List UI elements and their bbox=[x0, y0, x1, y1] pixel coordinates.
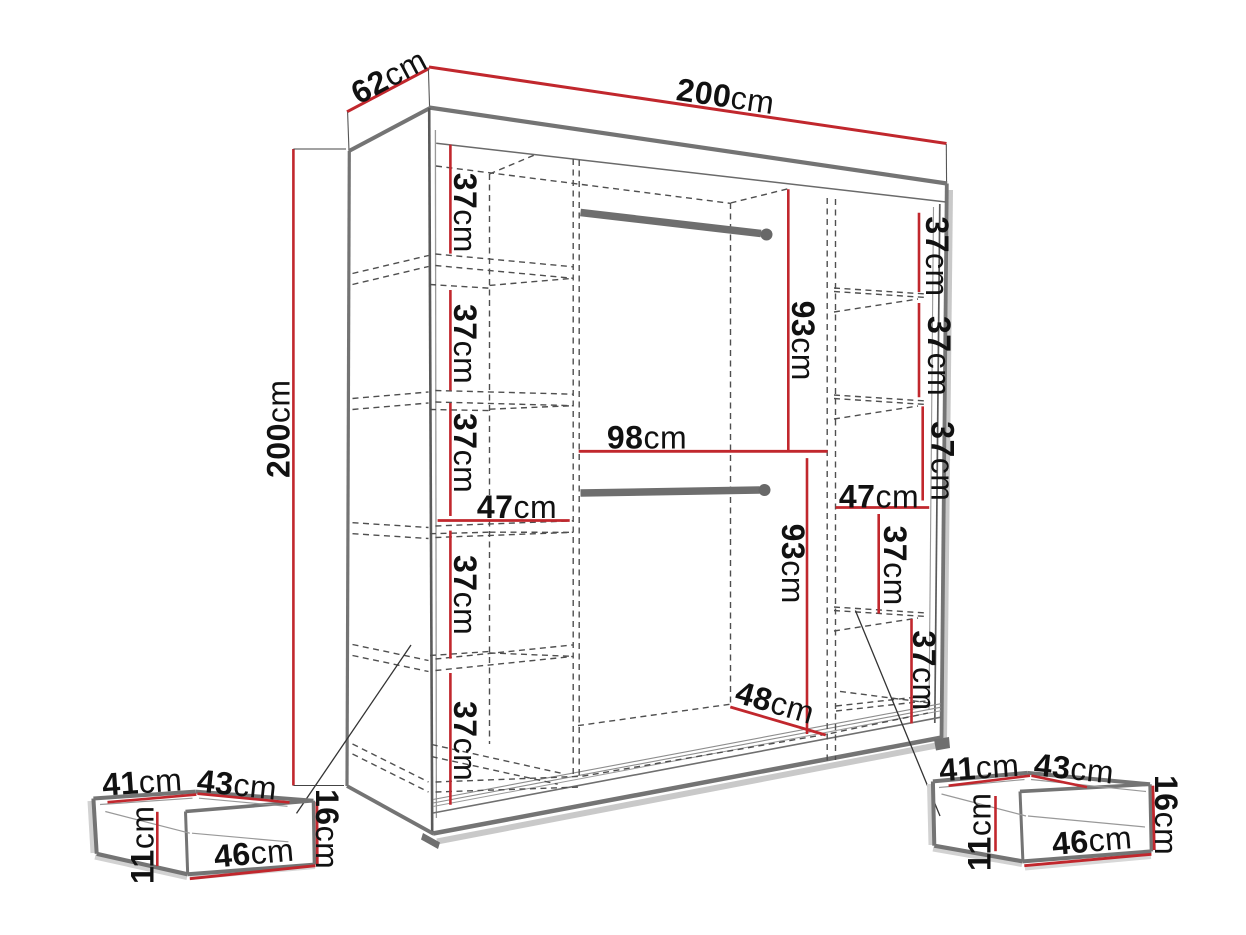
svg-text:16cm: 16cm bbox=[1148, 775, 1184, 855]
svg-text:37cm: 37cm bbox=[877, 526, 913, 606]
svg-text:37cm: 37cm bbox=[919, 216, 955, 296]
svg-text:37cm: 37cm bbox=[447, 413, 483, 493]
svg-text:46cm: 46cm bbox=[1051, 819, 1134, 862]
svg-text:16cm: 16cm bbox=[309, 789, 345, 869]
svg-text:93cm: 93cm bbox=[785, 301, 821, 381]
svg-text:47cm: 47cm bbox=[839, 479, 919, 515]
svg-text:11cm: 11cm bbox=[125, 806, 161, 884]
svg-text:37cm: 37cm bbox=[447, 555, 483, 635]
svg-text:37cm: 37cm bbox=[906, 630, 942, 710]
svg-text:41cm: 41cm bbox=[101, 761, 184, 803]
svg-text:37cm: 37cm bbox=[925, 421, 961, 501]
svg-text:93cm: 93cm bbox=[775, 524, 811, 604]
svg-text:46cm: 46cm bbox=[213, 832, 296, 875]
svg-text:37cm: 37cm bbox=[921, 316, 957, 396]
svg-text:41cm: 41cm bbox=[938, 747, 1021, 789]
svg-text:11cm: 11cm bbox=[962, 793, 998, 871]
svg-text:98cm: 98cm bbox=[607, 420, 687, 456]
svg-text:47cm: 47cm bbox=[477, 489, 557, 525]
svg-text:37cm: 37cm bbox=[447, 304, 483, 384]
svg-text:37cm: 37cm bbox=[447, 173, 483, 253]
svg-text:37cm: 37cm bbox=[447, 701, 483, 781]
svg-text:200cm: 200cm bbox=[261, 379, 297, 478]
